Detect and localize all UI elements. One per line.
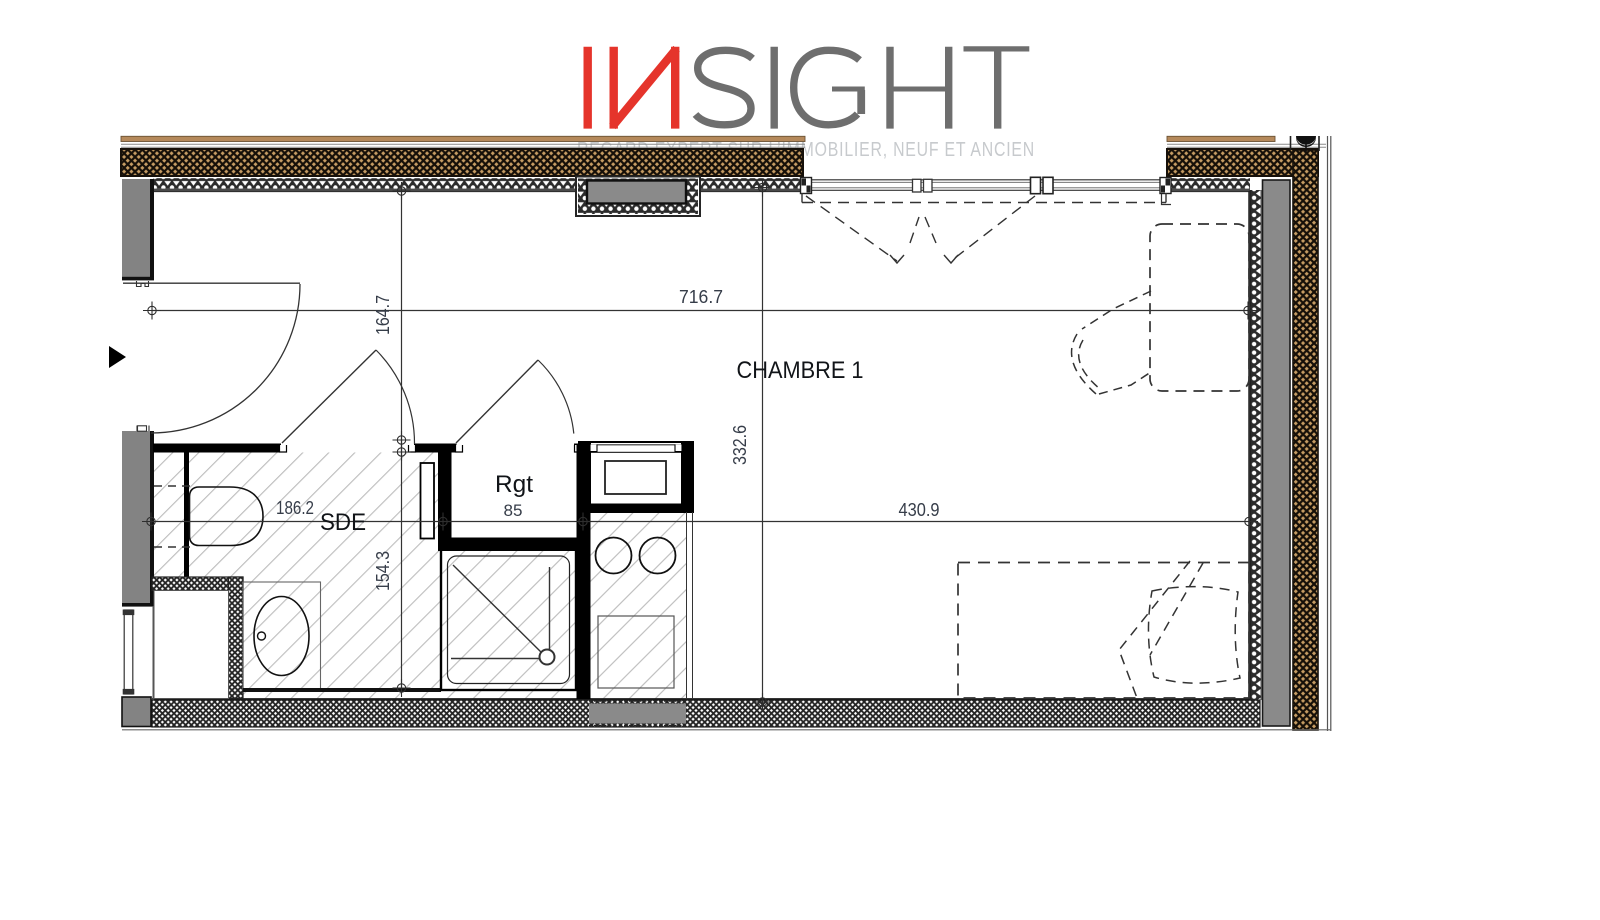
- svg-text:CHAMBRE 1: CHAMBRE 1: [737, 357, 864, 384]
- svg-text:430.9: 430.9: [899, 500, 940, 520]
- svg-text:154.3: 154.3: [373, 551, 393, 591]
- svg-text:332.6: 332.6: [730, 425, 750, 465]
- svg-text:Rgt: Rgt: [495, 471, 533, 498]
- svg-text:716.7: 716.7: [679, 287, 723, 307]
- svg-text:85: 85: [504, 501, 523, 520]
- svg-text:186.2: 186.2: [276, 498, 314, 518]
- svg-text:164.7: 164.7: [373, 295, 393, 335]
- svg-text:SDE: SDE: [320, 509, 366, 536]
